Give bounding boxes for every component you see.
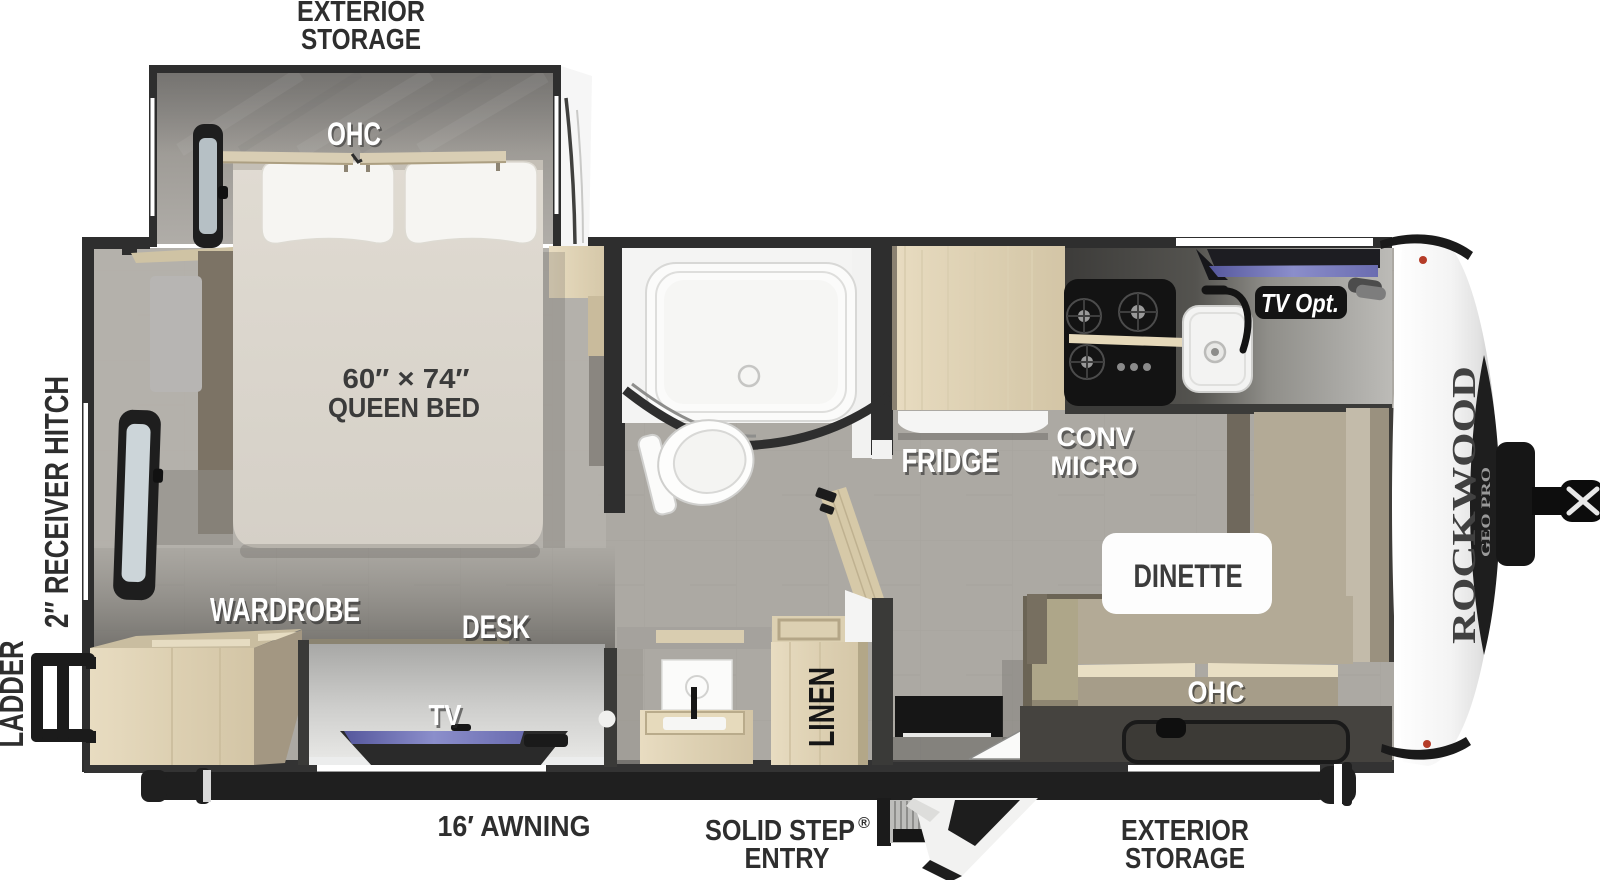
svg-text:TV Opt.: TV Opt.: [1261, 288, 1339, 318]
svg-text:LINEN: LINEN: [801, 667, 842, 747]
svg-text:LADDER: LADDER: [0, 640, 30, 747]
svg-text:FRIDGE: FRIDGE: [902, 442, 999, 479]
svg-text:WARDROBE: WARDROBE: [210, 591, 360, 628]
svg-text:DINETTE: DINETTE: [1134, 558, 1243, 594]
svg-text:OHC: OHC: [1188, 676, 1245, 709]
svg-text:OHC: OHC: [327, 116, 381, 152]
svg-text:ENTRY: ENTRY: [745, 843, 830, 875]
svg-text:®: ®: [858, 815, 870, 832]
svg-text:2″ RECEIVER HITCH: 2″ RECEIVER HITCH: [38, 376, 75, 628]
svg-text:MICRO: MICRO: [1051, 451, 1138, 481]
svg-text:60″ × 74″: 60″ × 74″: [343, 363, 470, 394]
svg-text:QUEEN BED: QUEEN BED: [328, 392, 480, 423]
svg-text:DESK: DESK: [462, 609, 530, 645]
svg-text:GEO PRO: GEO PRO: [1478, 467, 1493, 557]
svg-text:CONV: CONV: [1057, 422, 1134, 452]
svg-text:STORAGE: STORAGE: [301, 24, 421, 56]
svg-text:TV: TV: [429, 700, 463, 732]
svg-text:STORAGE: STORAGE: [1125, 843, 1245, 875]
svg-text:16′ AWNING: 16′ AWNING: [438, 811, 591, 843]
